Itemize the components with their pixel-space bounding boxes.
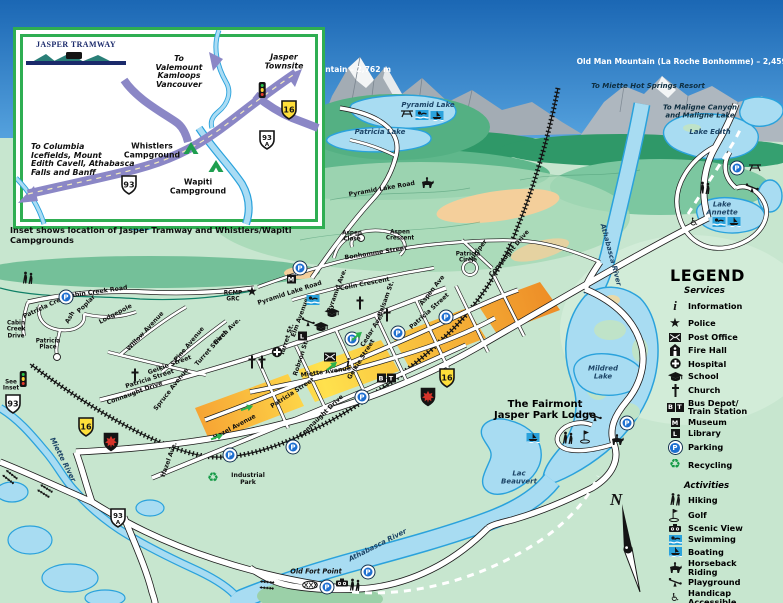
bus-depot-icon: BT — [666, 403, 684, 412]
legend-item-police: ★Police — [666, 316, 782, 331]
school-icon — [666, 372, 684, 382]
golf-icon — [666, 509, 684, 522]
parking-icon: P — [666, 440, 684, 455]
highway-93-shield: 93 — [119, 175, 139, 196]
post-office-icon — [666, 333, 684, 342]
legend-item-boating: Boating — [666, 547, 782, 557]
legend-item-label: Library — [688, 429, 721, 438]
hiking-icon — [666, 493, 684, 506]
legend-item-post-office: Post Office — [666, 333, 782, 342]
legend-item-label: Police — [688, 319, 716, 328]
legend-item-label: Hiking — [688, 496, 718, 505]
tramway-inset-map: JASPER TRAMWAY To Valemount Kamloops Van… — [13, 27, 325, 229]
tent-icon — [209, 160, 224, 172]
legend-item-golf: Golf — [666, 509, 782, 522]
legend-item-label: Scenic View — [688, 524, 743, 533]
legend-item-horseback: Horseback Riding — [666, 559, 782, 576]
svg-text:16: 16 — [283, 106, 295, 115]
legend-item-handicap: ♿Handicap Accessible — [666, 589, 782, 603]
legend-item-recycling: ♻Recycling — [666, 457, 782, 472]
highway-16-shield: 16 — [279, 100, 299, 121]
museum-icon: M — [666, 418, 684, 427]
legend-item-swimming: Swimming — [666, 535, 782, 545]
legend-item-label: Handicap Accessible — [688, 589, 736, 603]
swimming-icon — [666, 535, 684, 545]
legend-item-label: Hospital — [688, 360, 726, 369]
recycling-icon: ♻ — [666, 457, 684, 472]
legend-item-label: Information — [688, 302, 742, 311]
legend-item-label: Playground — [688, 578, 740, 587]
inset-caption: Inset shows location of Jasper Tramway a… — [10, 225, 332, 245]
legend-item-hospital: Hospital — [666, 358, 782, 369]
info-icon: i — [666, 298, 684, 314]
hospital-icon — [666, 358, 684, 369]
legend-item-bus-depot: BTBus Depot/ Train Station — [666, 399, 782, 416]
legend-services-list: iInformation★PolicePost OfficeFire HallH… — [658, 298, 782, 472]
jasper-townsite-map: Pyramid Mountain – 2,762 mOld Man Mounta… — [0, 0, 783, 603]
compass-rose: N — [600, 490, 656, 600]
highway-93A-shield: 93A — [257, 130, 277, 151]
legend-item-hiking: Hiking — [666, 493, 782, 506]
legend-title: LEGEND — [670, 266, 782, 285]
legend-item-label: Fire Hall — [688, 346, 727, 355]
inset-icons-layer: 1693A93 — [16, 30, 322, 226]
boating-icon — [666, 547, 684, 557]
legend-item-museum: MMuseum — [666, 418, 782, 427]
horseback-icon — [666, 562, 684, 574]
svg-text:A: A — [265, 142, 270, 148]
legend-item-label: Recycling — [688, 461, 732, 470]
legend: LEGEND Services iInformation★PolicePost … — [658, 266, 782, 603]
traffic-light-icon — [259, 82, 266, 98]
legend-activities-list: HikingGolfScenic ViewSwimmingBoatingHors… — [658, 493, 782, 603]
fire-hall-icon — [666, 344, 684, 356]
legend-item-school: School — [666, 372, 782, 382]
legend-item-library: LLibrary — [666, 429, 782, 438]
tent-icon — [184, 142, 199, 154]
compass-north-label: N — [610, 490, 622, 510]
playground-icon — [666, 578, 684, 587]
legend-item-church: Church — [666, 384, 782, 397]
legend-item-label: Church — [688, 386, 720, 395]
legend-item-label: Horseback Riding — [688, 559, 737, 576]
svg-text:93: 93 — [262, 134, 272, 142]
compass-needle-icon — [600, 490, 656, 600]
legend-item-label: School — [688, 372, 719, 381]
legend-item-info: iInformation — [666, 298, 782, 314]
legend-item-label: Boating — [688, 548, 724, 557]
legend-item-label: Post Office — [688, 333, 738, 342]
legend-item-fire-hall: Fire Hall — [666, 344, 782, 356]
legend-activities-title: Activities — [684, 481, 782, 491]
legend-item-parking: PParking — [666, 440, 782, 455]
church-icon — [666, 384, 684, 397]
legend-item-label: Golf — [688, 511, 707, 520]
legend-item-label: Parking — [688, 443, 723, 452]
legend-item-label: Museum — [688, 418, 727, 427]
legend-item-label: Bus Depot/ Train Station — [688, 399, 747, 416]
svg-text:93: 93 — [123, 181, 134, 190]
handicap-icon: ♿ — [666, 591, 684, 603]
library-icon: L — [666, 429, 684, 438]
scenic-icon — [666, 524, 684, 533]
legend-item-scenic: Scenic View — [666, 524, 782, 533]
legend-item-label: Swimming — [688, 535, 736, 544]
police-icon: ★ — [666, 316, 684, 331]
legend-item-playground: Playground — [666, 578, 782, 587]
legend-services-title: Services — [684, 286, 782, 296]
